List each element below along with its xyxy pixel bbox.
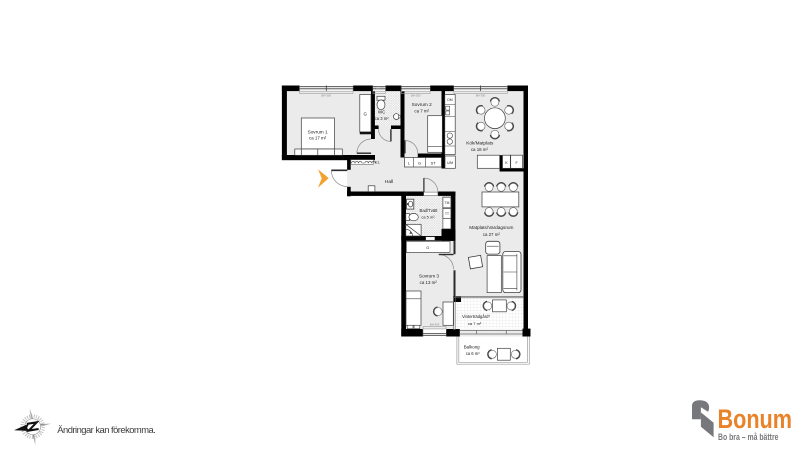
svg-text:ca 17 m²: ca 17 m²	[309, 136, 327, 141]
svg-text:ca 13 m²: ca 13 m²	[420, 280, 438, 285]
svg-text:ca 7 m²: ca 7 m²	[468, 321, 482, 326]
svg-text:Kök/Matplats: Kök/Matplats	[466, 141, 494, 146]
svg-text:EL: EL	[375, 161, 379, 165]
svg-text:ca 18 m²: ca 18 m²	[471, 147, 489, 152]
svg-text:U/M: U/M	[447, 161, 453, 165]
svg-text:Vinterträdgård*: Vinterträdgård*	[462, 314, 490, 319]
svg-text:BH-300: BH-300	[411, 94, 421, 98]
svg-text:Sovrum 1: Sovrum 1	[308, 129, 328, 134]
svg-text:ca 27 m²: ca 27 m²	[483, 232, 501, 237]
svg-text:BH-300: BH-300	[430, 322, 440, 326]
svg-text:WC: WC	[378, 109, 386, 114]
svg-text:Balkong: Balkong	[464, 345, 480, 350]
svg-text:ca 7 m²: ca 7 m²	[414, 108, 429, 113]
svg-text:Bad/Tvätt: Bad/Tvätt	[420, 208, 439, 213]
svg-text:Ändringar kan förekomma.: Ändringar kan förekomma.	[57, 424, 156, 435]
svg-text:BH-300: BH-300	[476, 94, 486, 98]
svg-text:G: G	[426, 245, 429, 250]
svg-text:G: G	[363, 112, 367, 117]
svg-text:BH-300: BH-300	[374, 87, 384, 91]
svg-text:BH-300: BH-300	[322, 94, 332, 98]
svg-text:Bonum: Bonum	[718, 404, 793, 434]
svg-text:Sovrum 2: Sovrum 2	[412, 102, 432, 107]
svg-text:TM: TM	[445, 201, 450, 205]
svg-text:ST: ST	[431, 160, 437, 165]
svg-text:DM: DM	[447, 98, 452, 102]
svg-text:Sovrum 3: Sovrum 3	[419, 274, 439, 279]
svg-text:Bo bra – må bättre: Bo bra – må bättre	[718, 432, 779, 442]
svg-text:G: G	[418, 160, 421, 165]
svg-text:ca 5 m²: ca 5 m²	[421, 215, 435, 220]
svg-text:Matplats/Vardagsrum: Matplats/Vardagsrum	[469, 225, 513, 230]
svg-text:ca 6 m²: ca 6 m²	[466, 351, 481, 356]
svg-text:ca 3 m²: ca 3 m²	[375, 116, 390, 121]
svg-text:TT: TT	[445, 212, 449, 216]
svg-text:Hall: Hall	[385, 179, 393, 185]
